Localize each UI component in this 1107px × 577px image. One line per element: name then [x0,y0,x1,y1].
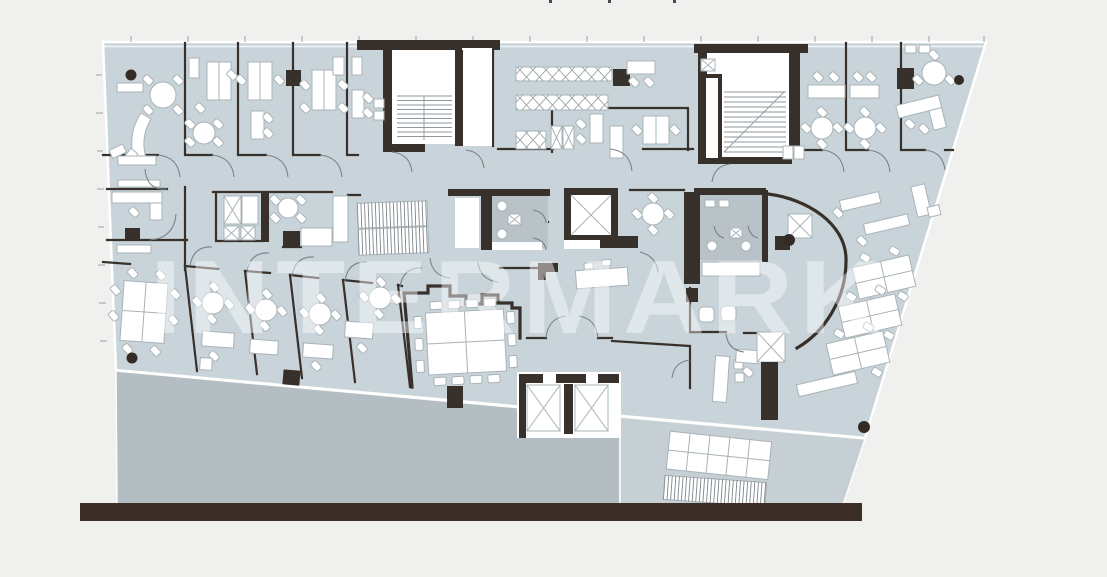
conference-wall-pier [447,386,463,408]
watermark-text: INTERMARK [150,240,888,356]
base-line [80,503,862,521]
stairwell-east [694,44,808,164]
floor-plan-screenshot: INTERMARK [0,0,1107,577]
balcony-glazing [663,431,771,506]
floor-plan-image: INTERMARK [0,0,1107,577]
